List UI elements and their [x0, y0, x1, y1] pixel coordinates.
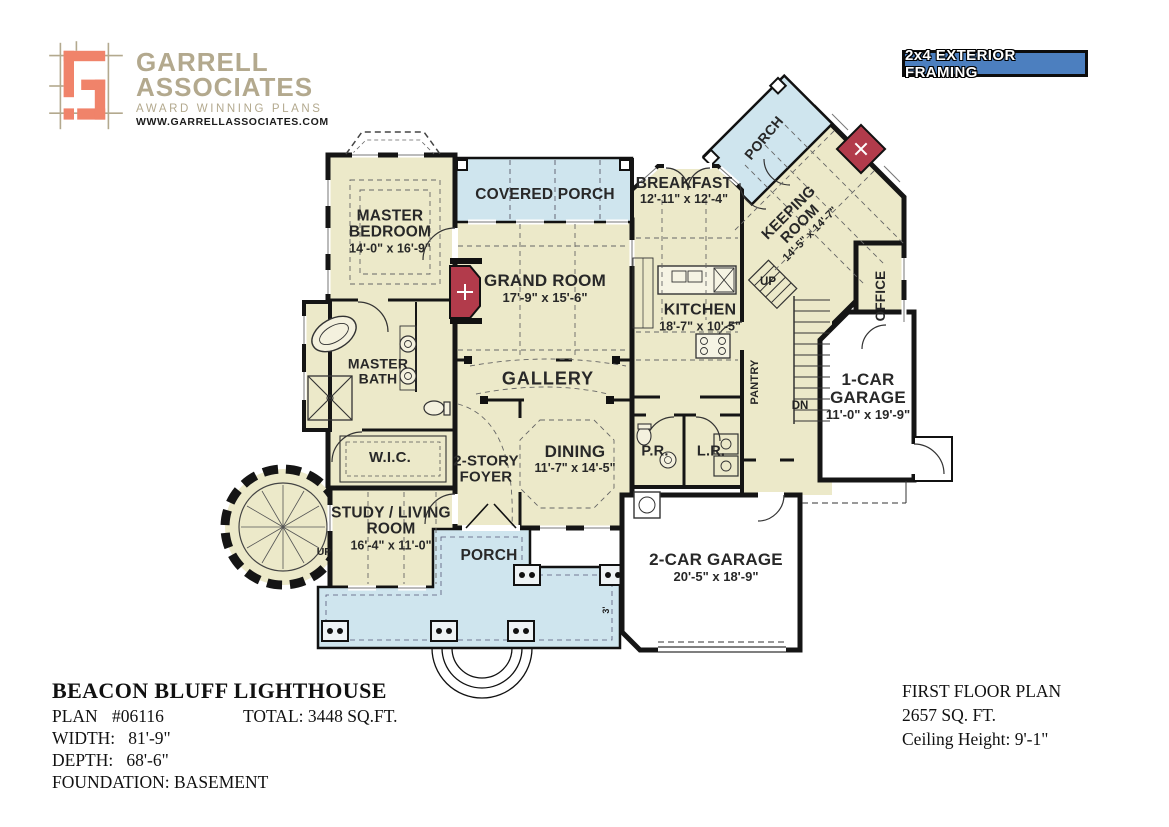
- porch-column-base: [620, 160, 630, 170]
- porch-column-base: [457, 160, 467, 170]
- room-label-two-story-foyer: 2-STORY FOYER: [446, 453, 526, 485]
- plan-number: #06116: [112, 706, 164, 727]
- room-label-office: OFFICE: [874, 271, 888, 322]
- first-floor-plan-label: FIRST FLOOR PLAN: [902, 681, 1061, 702]
- stairs-down-label: DN: [792, 400, 809, 412]
- stairs-up-label: UP: [760, 276, 776, 288]
- room-label-master-bath: MASTER BATH: [343, 356, 413, 385]
- plan-title: BEACON BLUFF LIGHTHOUSE: [52, 678, 387, 704]
- room-label-grand-room: GRAND ROOM 17'-9" x 15'-6": [484, 272, 606, 304]
- plan-width: WIDTH: 81'-9": [52, 728, 171, 749]
- plan-depth: DEPTH: 68'-6": [52, 750, 169, 771]
- side-stoop: [634, 492, 660, 518]
- room-label-laundry-room: L.R.: [697, 444, 725, 459]
- first-floor-sqft: 2657 SQ. FT.: [902, 705, 996, 726]
- bay-window: [346, 132, 440, 154]
- floor-plan-sheet: GARRELL ASSOCIATES AWARD WINNING PLANS W…: [0, 0, 1169, 827]
- room-label-breakfast: BREAKFAST 12'-11" x 12'-4": [636, 176, 733, 206]
- room-label-covered-porch: COVERED PORCH: [475, 187, 615, 203]
- room-label-pantry: PANTRY: [750, 359, 762, 404]
- room-label-kitchen: KITCHEN 18'-7" x 10'-5": [659, 303, 741, 334]
- toilet-icon: [424, 401, 450, 415]
- room-label-two-car-garage: 2-CAR GARAGE 20'-5" x 18'-9": [649, 551, 783, 583]
- kitchen-island-icon: [658, 266, 736, 294]
- room-label-one-car-garage: 1-CAR GARAGE 11'-0" x 19'-9": [823, 371, 913, 421]
- porch-steps: [432, 648, 532, 698]
- room-label-wic: W.I.C.: [369, 450, 411, 466]
- plan-total-sqft: TOTAL: 3448 SQ.FT.: [243, 706, 397, 727]
- room-label-dining: DINING 11'-7" x 14'-5": [534, 443, 615, 475]
- garage-stoop: [914, 437, 952, 481]
- room-label-powder-room: P.R.: [641, 444, 668, 459]
- range-icon: [696, 334, 730, 358]
- room-label-master-bedroom: MASTER BEDROOM 14'-0" x 16'-9": [331, 209, 449, 256]
- plan-label: PLAN: [52, 706, 98, 727]
- ceiling-height: Ceiling Height: 9'-1": [902, 729, 1048, 750]
- room-label-study-living: STUDY / LIVING ROOM 16'-4" x 11'-0": [321, 506, 461, 553]
- turret-up-label: UP: [317, 546, 332, 558]
- room-label-gallery: GALLERY: [502, 370, 594, 389]
- dim-marker-label: 3': [601, 606, 611, 613]
- plan-foundation: FOUNDATION: BASEMENT: [52, 772, 268, 793]
- room-label-porch-lower: PORCH: [461, 548, 518, 564]
